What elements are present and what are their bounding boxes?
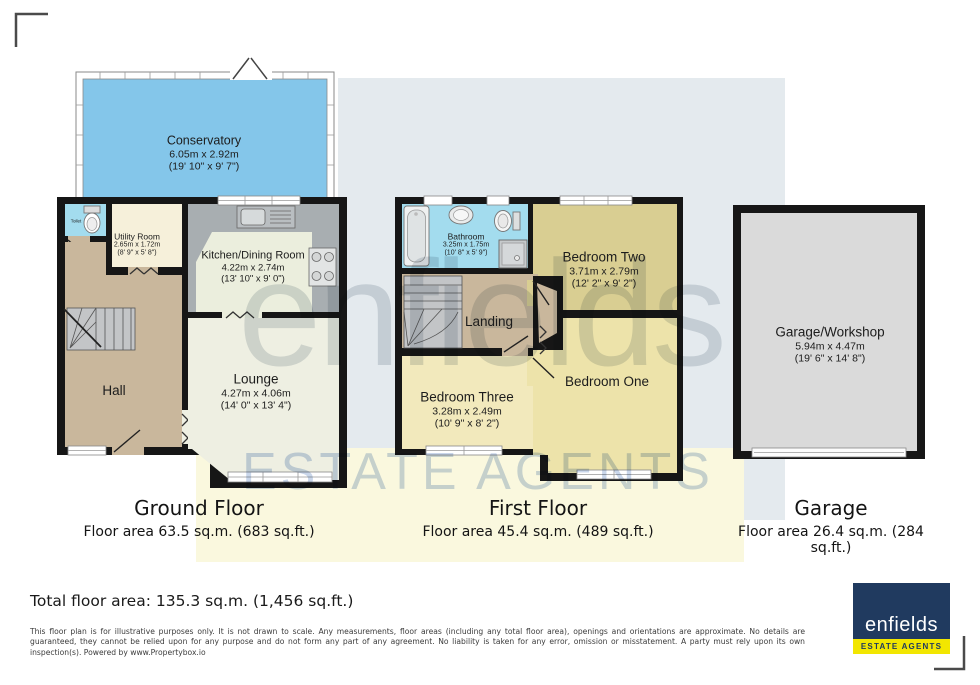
door-opening: [527, 280, 533, 306]
first-floor-plan: [395, 196, 683, 481]
hob-ring: [312, 272, 321, 281]
room-label-bedroom-three: Bedroom Three 3.28m x 2.49m (10' 9" x 8'…: [420, 390, 514, 431]
total-floor-area: Total floor area: 135.3 sq.m. (1,456 sq.…: [30, 592, 353, 610]
basin-icon: [454, 210, 469, 221]
window: [487, 196, 509, 205]
sink-icon: [241, 209, 265, 225]
room-label-toilet: Toilet: [71, 218, 82, 223]
logo-tagline-bar: ESTATE AGENTS: [853, 639, 950, 654]
door-opening: [68, 236, 90, 242]
door-opening: [527, 356, 533, 386]
toilet-icon: [498, 214, 508, 228]
floorplan-page: enfields ESTATE AGENTS Conservatory 6.05…: [0, 0, 980, 685]
corner-bracket-top-left: [16, 14, 48, 47]
enfields-logo: enfields ESTATE AGENTS: [853, 583, 950, 653]
toilet-icon: [513, 212, 520, 230]
logo-tagline-text: ESTATE AGENTS: [861, 642, 942, 651]
ground-floor-area: Floor area 63.5 sq.m. (683 sq.ft.): [83, 524, 314, 540]
room-label-utility: Utility Room 2.65m x 1.72m (8' 9" x 5' 8…: [114, 232, 160, 259]
hob-ring: [325, 253, 334, 262]
garage-title: Garage: [794, 496, 867, 520]
toilet-icon: [87, 218, 97, 231]
bathtub-icon: [408, 210, 426, 262]
first-floor-area: Floor area 45.4 sq.m. (489 sq.ft.): [422, 524, 653, 540]
toilet-icon: [84, 206, 100, 213]
door-opening: [502, 348, 528, 356]
room-label-kitchen: Kitchen/Dining Room 4.22m x 2.74m (13' 1…: [201, 249, 304, 284]
bath-tap: [414, 212, 418, 216]
stairs: [67, 308, 135, 350]
room-label-landing: Landing: [465, 314, 513, 330]
room-label-garage-workshop: Garage/Workshop 5.94m x 4.47m (19' 6" x …: [775, 325, 884, 366]
room-label-bedroom-two: Bedroom Two 3.71m x 2.79m (12' 2" x 9' 2…: [562, 250, 645, 291]
front-door-opening: [112, 447, 144, 455]
room-label-bedroom-one: Bedroom One: [565, 374, 649, 390]
garage-area: Floor area 26.4 sq.m. (284 sq.ft.): [725, 524, 937, 556]
shower-icon: [502, 243, 524, 265]
stairs: [404, 276, 462, 348]
room-label-lounge: Lounge 4.27m x 4.06m (14' 0" x 13' 4"): [221, 372, 291, 413]
first-floor-title: First Floor: [489, 496, 587, 520]
hob-ring: [312, 253, 321, 262]
disclaimer-text: This floor plan is for illustrative purp…: [30, 627, 805, 658]
hob-ring: [325, 272, 334, 281]
shower-drain: [515, 256, 520, 261]
room-label-hall: Hall: [102, 383, 125, 399]
room-label-conservatory: Conservatory 6.05m x 2.92m (19' 10" x 9'…: [167, 133, 241, 173]
room-label-bathroom: Bathroom 3.25m x 1.75m (10' 8" x 5' 9"): [443, 232, 489, 259]
ground-floor-title: Ground Floor: [134, 496, 264, 520]
window: [424, 196, 452, 205]
logo-navy-block: enfields: [853, 583, 950, 639]
logo-brand-text: enfields: [865, 614, 938, 639]
